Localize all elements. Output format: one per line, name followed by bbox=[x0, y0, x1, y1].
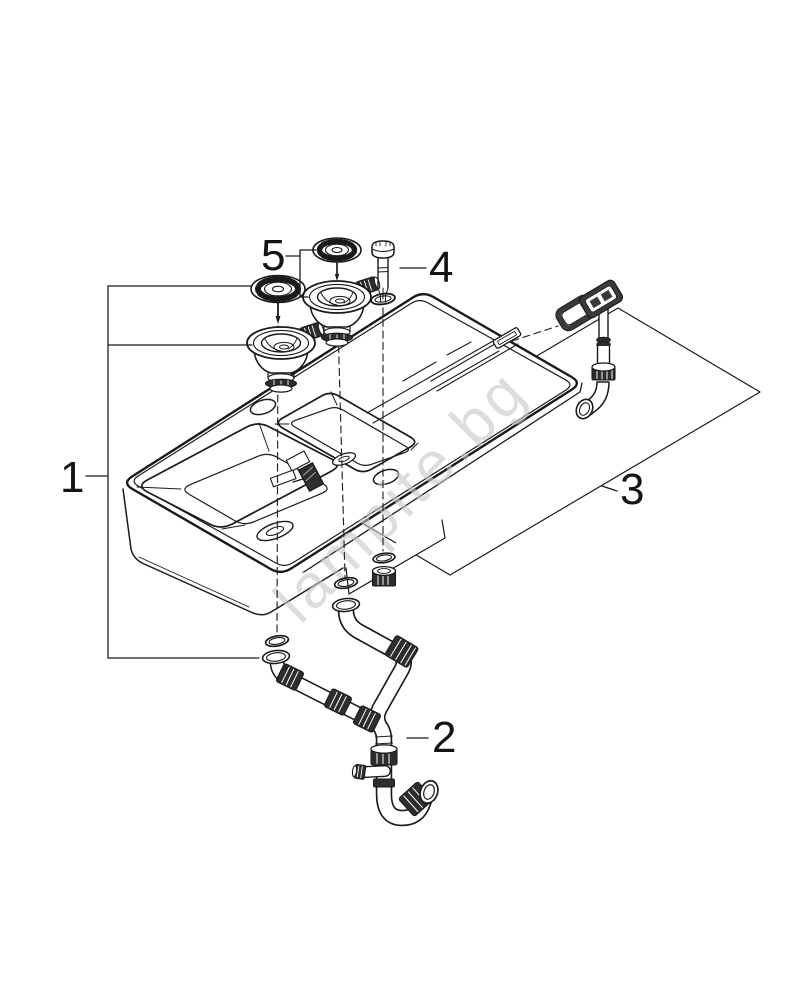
trap-spigot-cap bbox=[352, 764, 366, 780]
overflow-assembly bbox=[553, 278, 624, 421]
oring-left bbox=[265, 634, 289, 648]
callout-3: 3 bbox=[602, 465, 644, 514]
callout-5-label: 5 bbox=[261, 231, 285, 280]
strainer-plug-left bbox=[251, 276, 305, 325]
drain-stopper-knob bbox=[370, 241, 395, 306]
callout-1-label: 1 bbox=[60, 453, 84, 502]
overflow-bezel bbox=[578, 278, 625, 319]
callout-4: 4 bbox=[400, 243, 453, 292]
callout-3-leader bbox=[602, 486, 617, 491]
trap-inlet-left bbox=[262, 649, 290, 665]
diagram-canvas: lampite.bg bbox=[0, 0, 792, 1000]
callout-2: 2 bbox=[407, 713, 456, 762]
callout-4-label: 4 bbox=[429, 243, 453, 292]
exploded-diagram: lampite.bg bbox=[0, 0, 792, 1000]
callout-2-label: 2 bbox=[432, 713, 456, 762]
trap-band bbox=[374, 779, 395, 787]
trap-assembly bbox=[262, 597, 441, 818]
callout-3-label: 3 bbox=[620, 465, 644, 514]
trap-nut-vertical bbox=[371, 745, 397, 765]
strainer-plug-center bbox=[313, 238, 361, 281]
overflow-connection-nut bbox=[373, 567, 396, 586]
